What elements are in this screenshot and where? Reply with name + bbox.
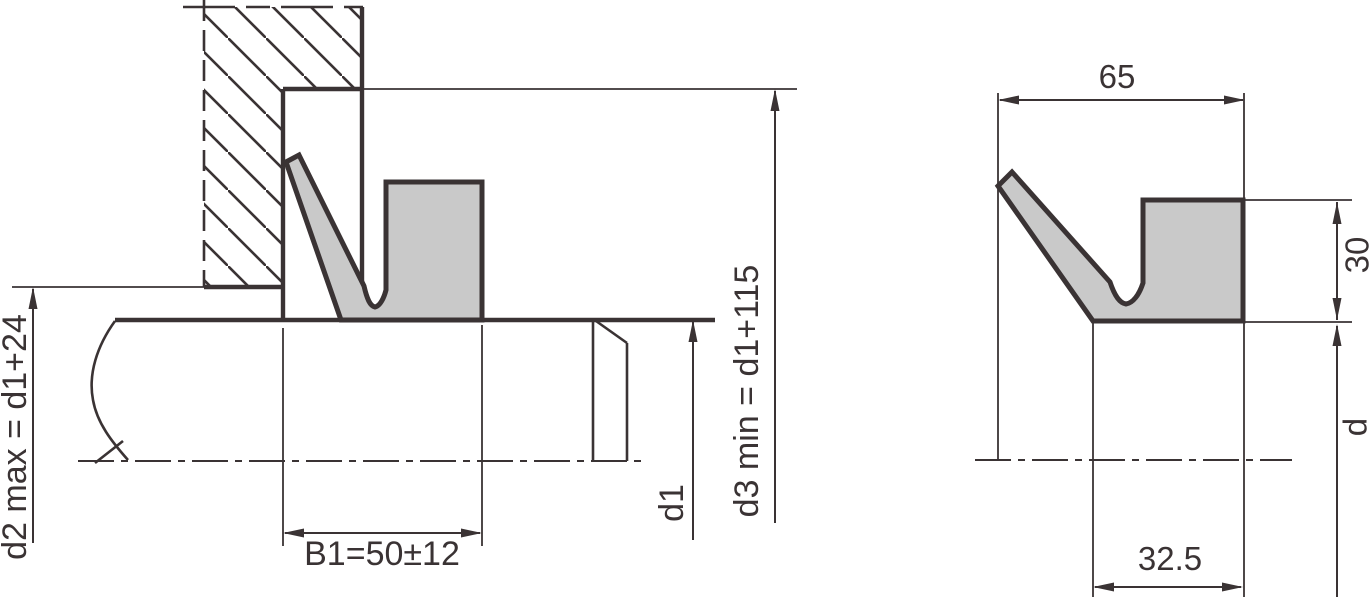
label-b1: B1=50±12: [304, 535, 460, 573]
d1-arrowhead-up: [689, 320, 698, 342]
height-arrowhead-up: [1333, 202, 1342, 224]
seal-technical-drawing: d2 max = d1+24 B1=50±12 d1 d3 min = d1+1…: [0, 0, 1371, 603]
inner-arrowhead-left: [1093, 583, 1114, 592]
height-arrowhead-down: [1333, 298, 1342, 320]
label-d1: d1: [653, 484, 691, 522]
label-rod-diameter: d: [1337, 418, 1371, 436]
rod-arrowhead-up: [1333, 324, 1342, 346]
dimension-inner-width: 32.5: [1093, 540, 1243, 592]
rod-end-chamfer: [596, 321, 627, 343]
wiper-seal-profile: [998, 172, 1243, 321]
dimension-heel-height: 30: [1245, 200, 1371, 322]
rod-break-tick: [95, 441, 123, 463]
label-overall-width: 65: [1099, 58, 1136, 95]
dimension-rod-diameter: d: [1333, 324, 1371, 597]
dimension-overall-width: 65: [998, 58, 1245, 105]
technical-drawing-canvas: d2 max = d1+24 B1=50±12 d1 d3 min = d1+1…: [0, 0, 1371, 603]
wiper-seal-profile-installed: [286, 155, 482, 320]
label-d3: d3 min = d1+115: [728, 265, 766, 518]
dimension-d2: d2 max = d1+24: [0, 287, 38, 560]
label-heel-height: 30: [1339, 237, 1371, 274]
dimension-b1: B1=50±12: [283, 325, 482, 573]
dimension-d3: d3 min = d1+115: [728, 89, 780, 523]
right-profile-view: 65 30 d 32.5: [975, 58, 1371, 597]
rod-break-line: [92, 321, 128, 460]
d3-arrowhead-up: [771, 89, 780, 111]
width-arrowhead-right: [1224, 96, 1245, 105]
b1-arrowhead-right: [461, 529, 482, 538]
label-d2: d2 max = d1+24: [0, 314, 34, 560]
left-section-view: d2 max = d1+24 B1=50±12 d1 d3 min = d1+1…: [0, 0, 797, 573]
width-arrowhead-left: [998, 96, 1019, 105]
dimension-d1: d1: [653, 320, 698, 540]
inner-arrowhead-right: [1222, 583, 1243, 592]
d2-arrowhead-up: [29, 287, 38, 309]
label-inner-width: 32.5: [1138, 540, 1202, 577]
b1-arrowhead-left: [283, 529, 304, 538]
